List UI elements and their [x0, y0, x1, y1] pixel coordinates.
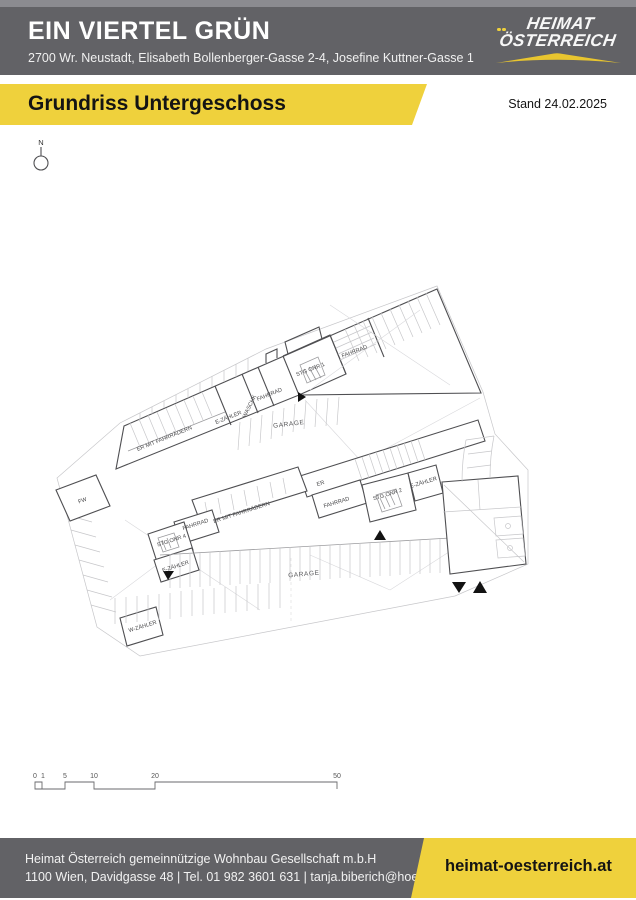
right-garage-block [442, 436, 526, 574]
header-top-strip [0, 0, 636, 7]
scale-label: 50 [333, 773, 341, 780]
north-label: N [38, 138, 43, 147]
footer-company: Heimat Österreich gemeinnützige Wohnbau … [25, 850, 432, 868]
scale-label: 5 [63, 773, 67, 780]
revision-date: Stand 24.02.2025 [508, 97, 607, 111]
scale-label: 1 [41, 773, 45, 780]
scale-label: 20 [151, 773, 159, 780]
garage-label: GARAGE [273, 419, 305, 430]
logo-line1: HEIMAT [490, 15, 631, 32]
footer-website: heimat-oesterreich.at [445, 857, 612, 876]
floor-plan-drawing: N [0, 130, 636, 800]
heimat-oesterreich-logo: HEIMAT ÖSTERREICH [490, 15, 628, 69]
drawing-title: Grundriss Untergeschoss [28, 92, 286, 116]
footer-contact: 1100 Wien, Davidgasse 48 | Tel. 01 982 3… [25, 868, 432, 886]
project-address: 2700 Wr. Neustadt, Elisabeth Bollenberge… [28, 51, 474, 65]
project-title: EIN VIERTEL GRÜN [28, 17, 270, 46]
scale-bar: 0 1 5 10 20 50 [33, 773, 341, 789]
logo-swoosh-icon [493, 52, 625, 64]
logo-line2: ÖSTERREICH [487, 32, 628, 49]
north-arrow-icon: N [34, 138, 48, 170]
scale-label: 0 [33, 773, 37, 780]
footer-website-box: heimat-oesterreich.at [411, 838, 636, 898]
section-banner: Grundriss Untergeschoss [0, 84, 430, 125]
header: EIN VIERTEL GRÜN 2700 Wr. Neustadt, Elis… [0, 0, 636, 75]
entrance-triangle [374, 530, 386, 540]
entrance-triangle [452, 582, 466, 593]
garage-label: GARAGE [288, 570, 320, 580]
scale-label: 10 [90, 773, 98, 780]
